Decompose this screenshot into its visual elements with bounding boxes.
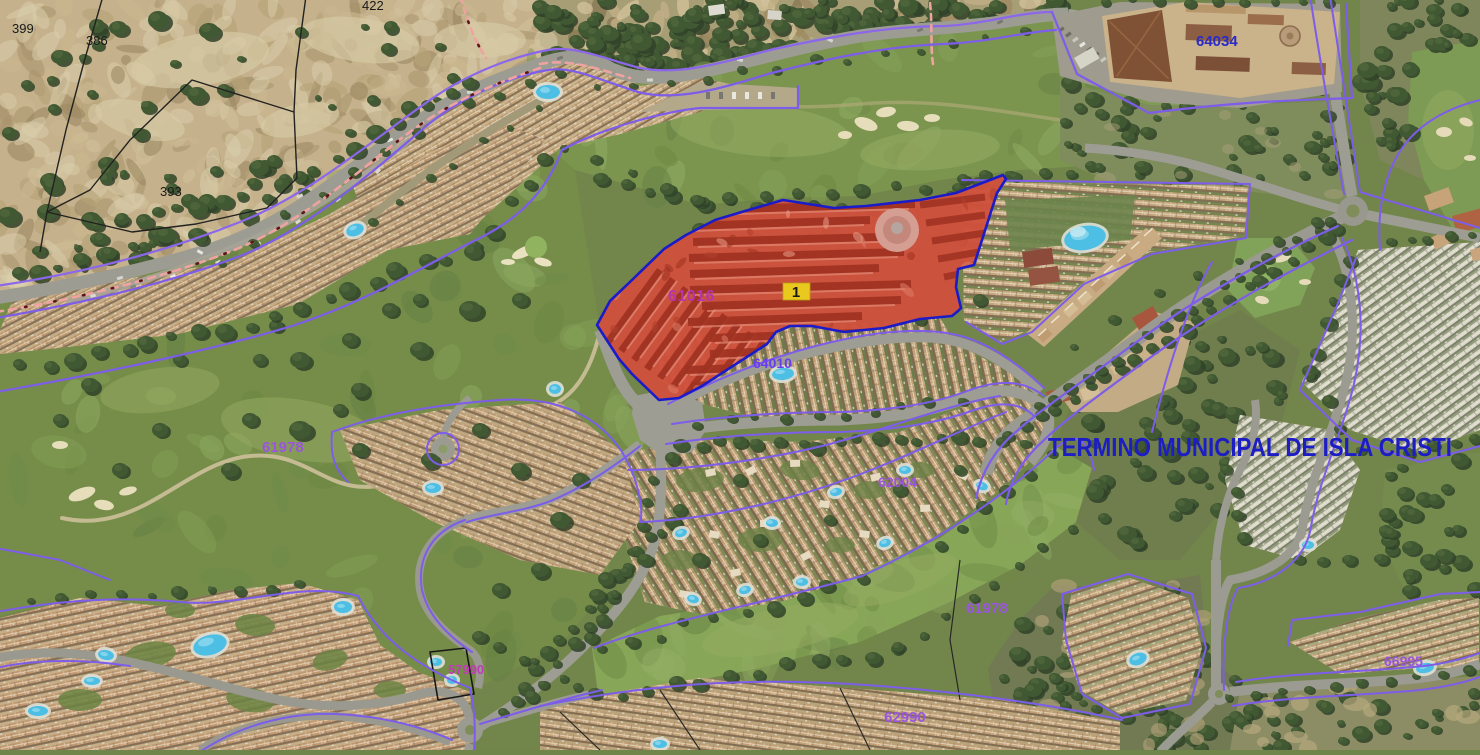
svg-text:399: 399 [12,21,34,36]
svg-text:393: 393 [160,184,182,199]
svg-text:62004: 62004 [878,474,917,490]
svg-text:61978: 61978 [262,439,304,456]
svg-text:61978: 61978 [966,600,1008,617]
svg-text:62990: 62990 [884,709,926,726]
svg-text:422: 422 [362,0,384,13]
svg-text:TERMINO MUNICIPAL DE ISLA CRIS: TERMINO MUNICIPAL DE ISLA CRISTI [1048,432,1452,462]
svg-text:61016: 61016 [668,288,715,305]
svg-text:66995: 66995 [1384,653,1423,669]
svg-text:1: 1 [792,284,800,301]
svg-text:64034: 64034 [1196,33,1238,50]
svg-text:64010: 64010 [753,355,792,371]
svg-text:57990: 57990 [448,662,484,677]
svg-text:386: 386 [86,33,108,48]
